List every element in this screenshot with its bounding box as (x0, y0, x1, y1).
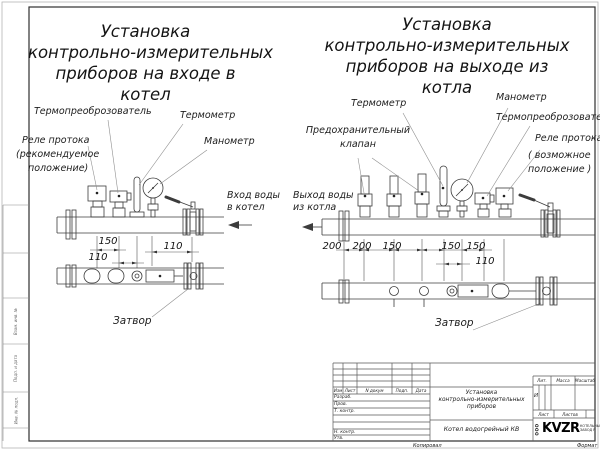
right-pipe-top-view (322, 277, 595, 307)
margin-stamp-text: Взам. инв. № (14, 307, 19, 334)
tb-lit-header: Лит. (533, 378, 551, 383)
transducer-symbol (475, 193, 494, 217)
logo-subtext: КОТЕЛЬНЫЙ ЗАВОД Р (580, 424, 600, 432)
drawing-sheet: Установка контрольно-измерительных прибо… (0, 0, 600, 450)
label-manometer-right: Манометр (496, 92, 547, 104)
title-line: Установка (28, 21, 263, 42)
margin-stamp-label: Взам. инв. № (3, 298, 29, 344)
tb-row-razrab: Разраб. (334, 395, 352, 400)
label-line: Выход воды (293, 190, 354, 202)
left-pipe-front-view (57, 177, 252, 239)
label-flow-relay-right-note: ( возможное (528, 150, 591, 162)
label-manometer-left: Манометр (204, 136, 255, 148)
label-safety-valve: Предохранительный (303, 125, 413, 137)
flange (345, 211, 349, 241)
tb-row-nkontr: Н. контр. (334, 430, 356, 435)
tb-scale-header: Масштаб (575, 378, 595, 383)
dimension-value: 200 (350, 241, 374, 252)
thermometer-symbol (130, 177, 144, 217)
tb-row-utv: Утв. (334, 436, 343, 441)
logo-subtext-line: ЗАВОД Р (580, 428, 600, 432)
right-diagram-title: Установка контрольно-измерительных прибо… (318, 14, 576, 98)
label-water-outlet: Выход воды из котла (293, 190, 354, 213)
flow-relay-symbol (496, 188, 513, 217)
margin-stamp-text: Инв. № подл. (14, 396, 19, 424)
manometer-symbol (451, 179, 473, 217)
format-label: Формат (577, 443, 597, 449)
logo-ooo: ООО (533, 421, 541, 438)
leader-dots (96, 187, 154, 197)
title-line: контрольно-измерительных (28, 42, 263, 63)
tb-row-tkontr: Т. контр. (334, 409, 355, 414)
tb-col-list: Лист (343, 388, 357, 393)
copied-label: Копировал (413, 443, 442, 449)
dimension-value: 150 (439, 241, 463, 252)
title-line: Установка (318, 14, 576, 35)
dimension-value: 110 (86, 252, 110, 263)
title-line: приборов на входе в (28, 63, 263, 84)
butterfly-valve-symbol (166, 197, 203, 235)
dimension-value: 110 (161, 241, 185, 252)
tb-mass-header: Масса (551, 378, 575, 383)
label-thermometer-right: Термометр (351, 98, 406, 110)
margin-stamp-label: Подп. и дата (3, 344, 29, 392)
tb-doc-title-line: приборов (430, 404, 533, 411)
logo-ooo-text: ООО (535, 423, 540, 435)
flange (66, 210, 70, 239)
dimension-value: 150 (380, 241, 404, 252)
tb-product: Котел водогрейный КВ (430, 426, 533, 433)
thermometer-symbol (437, 166, 450, 217)
flow-arrow (302, 223, 313, 231)
tb-col-izm: Изм (333, 388, 343, 393)
label-transducer-left: Термопреоброзователь (34, 106, 152, 118)
safety-valve-symbol (415, 174, 429, 217)
tb-col-podp: Подп. (392, 388, 412, 393)
left-pipe-top-view (57, 263, 224, 289)
label-flow-relay-right-note: положение ) (528, 164, 591, 176)
tb-doc-title: Установка контрольно-измерительных прибо… (430, 390, 533, 412)
tb-row-prov: Пров. (334, 402, 347, 407)
title-line: котел (28, 84, 263, 105)
tb-sheets-header: Листов (554, 412, 586, 417)
label-line: из котла (293, 202, 354, 214)
flow-arrow (228, 221, 239, 229)
label-line: в котел (227, 202, 280, 214)
label-water-inlet: Вход воды в котел (227, 190, 280, 213)
margin-stamp-text: Подп. и дата (14, 354, 19, 381)
label-flow-relay-left-note: (рекомендуемое (16, 149, 99, 161)
title-line: приборов на выходе из (318, 56, 576, 77)
label-valve-left: Затвор (113, 316, 152, 328)
label-transducer-right: Термопреоброзователь (496, 112, 600, 124)
dimension-value: 150 (464, 241, 488, 252)
flow-relay-symbol (88, 186, 106, 217)
label-valve-right: Затвор (435, 318, 474, 330)
butterfly-valve-symbol (520, 195, 560, 237)
label-thermometer-left: Термометр (180, 110, 235, 122)
left-leader-lines (88, 120, 207, 317)
label-flow-relay-left: Реле протока (22, 135, 89, 147)
label-line: Вход воды (227, 190, 280, 202)
transducer-symbol (110, 191, 131, 217)
tb-sheet-header: Лист (533, 412, 554, 417)
label-flow-relay-left-note: положение) (28, 163, 88, 175)
tb-doc-title-line: контрольно-измерительных (430, 397, 533, 404)
tb-doc-title-line: Установка (430, 390, 533, 397)
dimension-value: 200 (320, 241, 344, 252)
dimension-value: 110 (473, 256, 497, 267)
margin-stamp-label: Инв. № подл. (3, 392, 29, 428)
flange (72, 210, 76, 239)
title-line: контрольно-измерительных (318, 35, 576, 56)
tb-col-data: Дата (412, 388, 430, 393)
tb-col-ndocum: N докум (357, 388, 392, 393)
tb-lit-value: И (533, 393, 539, 399)
left-diagram-title: Установка контрольно-измерительных прибо… (28, 21, 263, 105)
flange (339, 211, 343, 241)
label-safety-valve: клапан (303, 139, 413, 151)
label-flow-relay-right: Реле протока (535, 133, 600, 145)
dimension-value: 150 (96, 236, 120, 247)
logo-kvzr: KVZR (542, 421, 580, 436)
